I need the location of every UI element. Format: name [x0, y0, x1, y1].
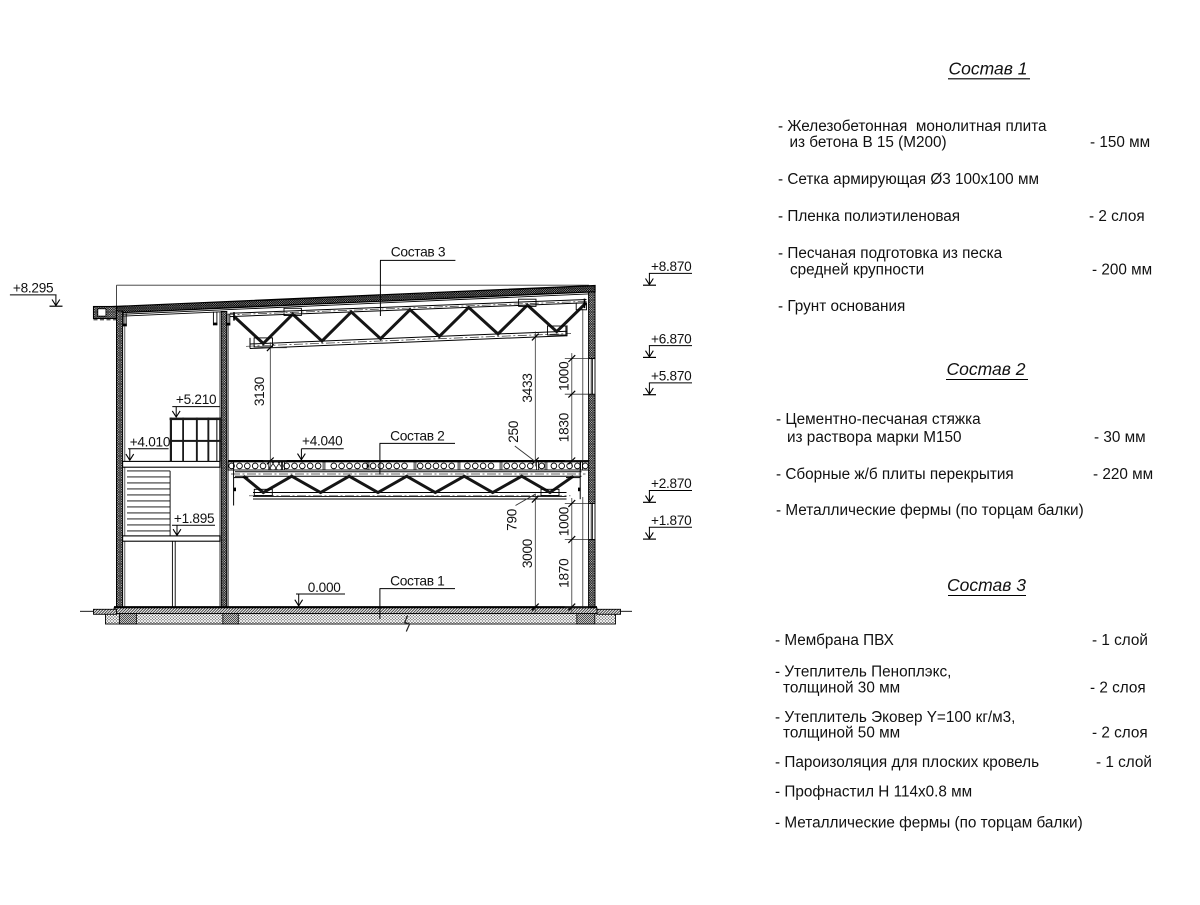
svg-text:- Цементно-песчаная стяжка: - Цементно-песчаная стяжка	[776, 411, 981, 428]
svg-text:из бетона В 15 (М200): из бетона В 15 (М200)	[790, 134, 947, 151]
svg-text:1870: 1870	[557, 558, 572, 588]
svg-text:Состав 2: Состав 2	[947, 359, 1026, 379]
svg-text:790: 790	[505, 508, 520, 531]
svg-text:- Металлические фермы (по торц: - Металлические фермы (по торцам балки)	[775, 815, 1083, 832]
svg-text:Состав 1: Состав 1	[390, 573, 444, 588]
svg-text:+8.295: +8.295	[13, 281, 53, 296]
svg-text:- 220 мм: - 220 мм	[1093, 466, 1153, 483]
svg-text:Состав 3: Состав 3	[947, 575, 1026, 595]
svg-text:1000: 1000	[557, 506, 572, 536]
svg-text:толщиной 50 мм: толщиной 50 мм	[783, 725, 900, 742]
svg-text:+8.870: +8.870	[651, 259, 692, 274]
svg-text:- Сборные ж/б плиты перекрытия: - Сборные ж/б плиты перекрытия	[776, 466, 1014, 483]
svg-text:- Металлические фермы (по торц: - Металлические фермы (по торцам балки)	[776, 502, 1084, 519]
svg-text:- Грунт основания: - Грунт основания	[778, 298, 905, 315]
svg-text:- 2 слоя: - 2 слоя	[1090, 679, 1146, 696]
svg-text:+4.040: +4.040	[302, 434, 343, 449]
svg-text:- Пленка полиэтиленовая: - Пленка полиэтиленовая	[778, 208, 960, 225]
svg-text:Состав 1: Состав 1	[949, 59, 1028, 79]
svg-text:- 1 слой: - 1 слой	[1092, 632, 1148, 649]
svg-text:- Пароизоляция для плоских кро: - Пароизоляция для плоских кровель	[775, 754, 1039, 771]
svg-text:Состав 2: Состав 2	[390, 428, 444, 443]
svg-text:+5.870: +5.870	[651, 369, 692, 384]
svg-text:Состав 3: Состав 3	[391, 244, 446, 259]
svg-text:+1.895: +1.895	[174, 511, 214, 526]
svg-text:+6.870: +6.870	[651, 331, 692, 346]
svg-text:толщиной 30 мм: толщиной 30 мм	[783, 679, 900, 696]
svg-text:- Мембрана ПВХ: - Мембрана ПВХ	[775, 632, 894, 649]
svg-text:+2.870: +2.870	[651, 476, 692, 491]
svg-text:средней крупности: средней крупности	[790, 261, 924, 278]
svg-text:+5.210: +5.210	[176, 392, 217, 407]
svg-text:- 2 слоя: - 2 слоя	[1092, 725, 1148, 742]
svg-text:- Сетка армирующая Ø3 100х100: - Сетка армирующая Ø3 100х100 мм	[778, 171, 1039, 188]
svg-text:- Профнастил Н 114х0.8 мм: - Профнастил Н 114х0.8 мм	[775, 783, 972, 800]
svg-text:- Песчаная подготовка из песка: - Песчаная подготовка из песка	[778, 245, 1003, 262]
svg-text:0.000: 0.000	[308, 580, 341, 595]
svg-text:3433: 3433	[520, 373, 535, 402]
svg-text:+4.010: +4.010	[130, 434, 171, 449]
svg-text:- 1 слой: - 1 слой	[1096, 754, 1152, 771]
svg-text:250: 250	[506, 420, 521, 443]
svg-text:1830: 1830	[557, 412, 572, 442]
svg-text:3000: 3000	[520, 538, 535, 568]
svg-text:- 30 мм: - 30 мм	[1094, 429, 1146, 446]
svg-text:- 200 мм: - 200 мм	[1092, 261, 1152, 278]
svg-text:- Утеплитель Пеноплэкс,: - Утеплитель Пеноплэкс,	[775, 663, 951, 680]
svg-text:+1.870: +1.870	[651, 513, 692, 528]
svg-text:из раствора марки М150: из раствора марки М150	[787, 429, 962, 446]
svg-text:- Утеплитель Эковер Y=100 кг/м: - Утеплитель Эковер Y=100 кг/м3,	[775, 709, 1015, 726]
svg-text:- Железобетонная монолитная п: - Железобетонная монолитная плита	[778, 118, 1047, 135]
svg-text:- 150 мм: - 150 мм	[1090, 134, 1150, 151]
svg-text:1000: 1000	[557, 361, 572, 391]
svg-text:3130: 3130	[252, 376, 267, 406]
svg-text:- 2 слоя: - 2 слоя	[1089, 208, 1145, 225]
